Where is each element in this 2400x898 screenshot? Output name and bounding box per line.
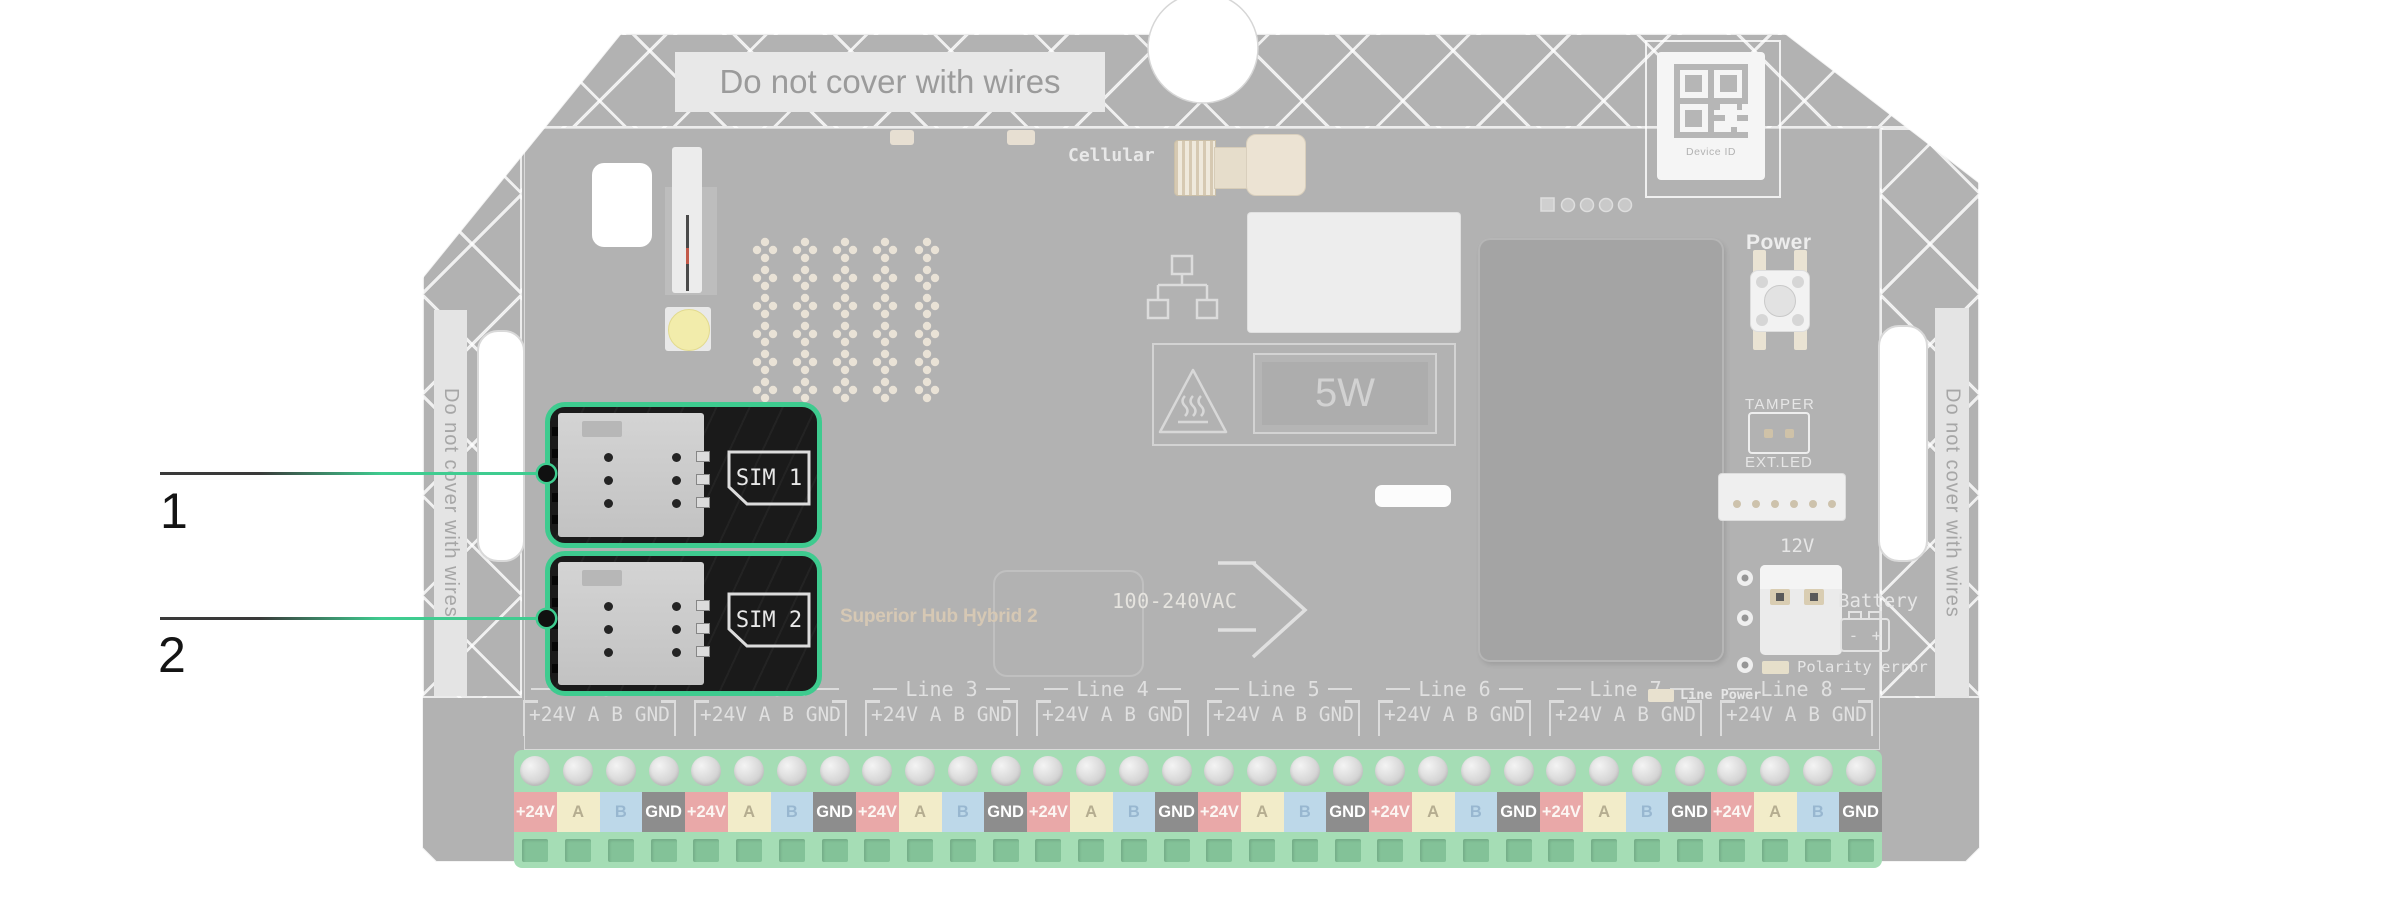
terminal-cell-label: A <box>1583 792 1626 832</box>
warning-banner-top: Do not cover with wires <box>675 52 1105 112</box>
terminal-cell-label: +24V <box>1711 792 1754 832</box>
power-button-plunger <box>1764 285 1796 317</box>
terminal-wire-hole <box>942 839 985 862</box>
sim1-socket <box>558 413 704 537</box>
terminal-bracket: +24V A B GND <box>1549 700 1702 736</box>
antenna-elbow <box>1246 134 1306 196</box>
terminal-screw <box>942 756 985 786</box>
terminal-wire-hole <box>984 839 1027 862</box>
terminal-screw <box>771 756 814 786</box>
terminal-screw <box>1284 756 1327 786</box>
socket-tooth <box>552 427 558 436</box>
terminal-screw <box>642 756 685 786</box>
terminal-screw <box>1326 756 1369 786</box>
terminal-cell-label: GND <box>1155 792 1198 832</box>
sim-pin <box>604 499 613 508</box>
sim-contact <box>696 474 710 485</box>
sim-pin <box>604 602 613 611</box>
terminal-cell-label: GND <box>642 792 685 832</box>
power-button-body <box>1750 270 1810 332</box>
terminal-screw <box>984 756 1027 786</box>
sim-pin <box>672 625 681 634</box>
terminal-wire-hole <box>813 839 856 862</box>
terminal-wire-hole <box>1198 839 1241 862</box>
terminal-wire-hole <box>1711 839 1754 862</box>
terminal-cell-label: +24V <box>1027 792 1070 832</box>
terminal-cell-label: B <box>1626 792 1669 832</box>
terminal-screw <box>557 756 600 786</box>
terminal-bracket: +24V A B GND <box>1036 700 1189 736</box>
terminal-screw <box>728 756 771 786</box>
ext-led-pin <box>1809 500 1817 508</box>
terminal-cell-label: B <box>600 792 643 832</box>
socket-tab <box>582 570 622 586</box>
ext-led-pin <box>1828 500 1836 508</box>
terminal-cell-label: B <box>942 792 985 832</box>
terminal-wire-hole <box>685 839 728 862</box>
line-group-label: Line 3 <box>905 677 977 701</box>
tamper-label: TAMPER <box>1745 396 1815 413</box>
mounting-slot-right <box>1878 325 1928 562</box>
device-id-caption: Device ID <box>1657 146 1765 158</box>
12v-label: 12V <box>1780 535 1814 557</box>
warning-banner-right-text: Do not cover with wires <box>1941 388 1964 618</box>
terminal-screw <box>1027 756 1070 786</box>
terminal-cell-label: +24V <box>856 792 899 832</box>
terminal-screw <box>813 756 856 786</box>
terminal-wire-hole <box>1155 839 1198 862</box>
button-corner <box>1756 276 1768 288</box>
callout-number-1: 1 <box>160 482 188 540</box>
callout-line-1 <box>160 472 542 475</box>
sim-contact <box>696 451 710 462</box>
terminal-wire-holes <box>514 832 1882 868</box>
terminal-cell-label: B <box>1113 792 1156 832</box>
terminal-screw-row <box>514 750 1882 792</box>
button-corner <box>1756 314 1768 326</box>
terminal-cell-label: A <box>1070 792 1113 832</box>
tamper-connector <box>1748 412 1810 454</box>
socket-tooth <box>552 515 558 524</box>
terminal-cell-label: +24V <box>1369 792 1412 832</box>
socket-tooth <box>552 493 558 502</box>
terminal-cell-label: B <box>1284 792 1327 832</box>
cellular-label-text: Cellular <box>1068 145 1155 166</box>
tamper-pin <box>1764 429 1773 438</box>
ext-led-pin <box>1733 500 1741 508</box>
sim2-socket <box>558 562 704 685</box>
battery-icon: - + <box>1840 618 1890 652</box>
sim-pin <box>604 476 613 485</box>
tamper-label-text: TAMPER <box>1745 396 1815 413</box>
socket-tab <box>582 421 622 437</box>
terminal-wire-hole <box>771 839 814 862</box>
terminal-wire-hole <box>856 839 899 862</box>
terminal-screw <box>685 756 728 786</box>
terminal-screw <box>856 756 899 786</box>
terminal-cell-label: B <box>1455 792 1498 832</box>
battery-connector <box>1760 565 1842 655</box>
terminal-wire-hole <box>1626 839 1669 862</box>
ext-led-pin <box>1752 500 1760 508</box>
connector-mark-red <box>686 248 689 264</box>
terminal-cell-label: B <box>771 792 814 832</box>
line-group-label: Line 5 <box>1247 677 1319 701</box>
terminal-cell-label: GND <box>1497 792 1540 832</box>
terminal-cell-label: GND <box>984 792 1027 832</box>
terminal-wire-hole <box>1369 839 1412 862</box>
terminal-wire-hole <box>1839 839 1882 862</box>
polarity-error-label: Polarity error <box>1797 658 1928 676</box>
power-rating-text: 5W <box>1315 371 1375 416</box>
sim-contact <box>696 646 710 657</box>
terminal-cell-label: +24V <box>1198 792 1241 832</box>
terminal-screw <box>1241 756 1284 786</box>
line-group-label: Line 4 <box>1076 677 1148 701</box>
terminal-cell-label: GND <box>1839 792 1882 832</box>
terminal-cell-label: A <box>1412 792 1455 832</box>
terminal-screw <box>1583 756 1626 786</box>
terminal-screw <box>1754 756 1797 786</box>
sim-pin <box>672 499 681 508</box>
terminal-cell-label: A <box>899 792 942 832</box>
terminal-wire-hole <box>1497 839 1540 862</box>
sim1-label: SIM 1 <box>727 466 811 491</box>
sim-contact <box>696 623 710 634</box>
power-rating-badge: 5W <box>1253 353 1437 434</box>
sim-pin <box>672 602 681 611</box>
antenna-connector-thread <box>1174 140 1216 196</box>
terminal-cell-label: A <box>1241 792 1284 832</box>
component-white-block <box>592 163 652 247</box>
callout-number-2: 2 <box>158 626 186 684</box>
socket-tooth <box>552 642 558 651</box>
terminal-screw <box>1711 756 1754 786</box>
terminal-screw <box>1497 756 1540 786</box>
line-group: Line 3+24V A B GND <box>856 678 1027 748</box>
terminal-wire-hole <box>1070 839 1113 862</box>
ext-led-pin <box>1771 500 1779 508</box>
sim1-highlight: SIM 1 <box>545 402 822 548</box>
terminal-screw <box>1070 756 1113 786</box>
terminal-cell-label: A <box>1754 792 1797 832</box>
terminal-bracket: +24V A B GND <box>523 700 676 736</box>
terminal-wire-hole <box>728 839 771 862</box>
terminal-screw <box>1412 756 1455 786</box>
battery-contact <box>1804 589 1824 605</box>
warning-banner-top-text: Do not cover with wires <box>719 63 1060 101</box>
terminal-wire-hole <box>1797 839 1840 862</box>
terminal-cell-label: GND <box>1326 792 1369 832</box>
terminal-cell-label: GND <box>1668 792 1711 832</box>
terminal-cell-label: A <box>728 792 771 832</box>
antenna-connector-collar <box>1214 147 1248 189</box>
terminal-wire-hole <box>557 839 600 862</box>
sim-contact <box>696 497 710 508</box>
qr-code <box>1674 64 1748 138</box>
terminal-screw <box>514 756 557 786</box>
terminal-screw <box>1198 756 1241 786</box>
socket-tooth <box>552 576 558 585</box>
mains-voltage-label: 100-240VAC <box>1112 589 1237 613</box>
callout-dot-1 <box>538 465 555 482</box>
line-group: Line 6+24V A B GND <box>1369 678 1540 748</box>
terminal-wire-hole <box>1668 839 1711 862</box>
battery-label: Battery <box>1838 590 1918 612</box>
warning-banner-left: Do not cover with wires <box>434 310 467 696</box>
terminal-wire-hole <box>600 839 643 862</box>
terminal-screw <box>1155 756 1198 786</box>
terminal-cell-label: +24V <box>1540 792 1583 832</box>
callout-dot-2 <box>538 610 555 627</box>
terminal-bracket: +24V A B GND <box>1378 700 1531 736</box>
terminal-screw <box>1369 756 1412 786</box>
terminal-wire-hole <box>1326 839 1369 862</box>
terminal-cell-label: B <box>1797 792 1840 832</box>
sim-pin <box>604 648 613 657</box>
battery-plus: + <box>1872 626 1882 645</box>
terminal-wire-hole <box>1241 839 1284 862</box>
button-corner <box>1792 276 1804 288</box>
model-name-text: Superior Hub Hybrid 2 <box>840 606 1037 627</box>
button-corner <box>1792 314 1804 326</box>
cellular-label: Cellular <box>1068 145 1155 166</box>
terminal-screw <box>899 756 942 786</box>
terminal-screw <box>1797 756 1840 786</box>
socket-tooth <box>552 598 558 607</box>
ext-led-connector <box>1718 473 1846 521</box>
terminal-wire-hole <box>1583 839 1626 862</box>
sim-contact <box>696 600 710 611</box>
polarity-error-led <box>1762 661 1789 674</box>
device-id-panel: Device ID <box>1657 52 1765 180</box>
line-power-label: Line Power <box>1648 687 1761 703</box>
terminal-screw <box>600 756 643 786</box>
sim-pin <box>604 625 613 634</box>
warning-banner-left-text: Do not cover with wires <box>439 388 462 618</box>
ext-led-pin <box>1790 500 1798 508</box>
terminal-screw <box>1626 756 1669 786</box>
callout-line-2 <box>160 617 542 620</box>
polarity-error-text: Polarity error <box>1797 658 1928 676</box>
line-group-label: Line 8 <box>1760 677 1832 701</box>
12v-label-text: 12V <box>1780 535 1814 557</box>
line-group: Line 5+24V A B GND <box>1198 678 1369 748</box>
sim2-highlight: SIM 2 <box>545 551 822 696</box>
terminal-bracket: +24V A B GND <box>1720 700 1873 736</box>
terminal-wire-hole <box>642 839 685 862</box>
ext-led-label: EXT.LED <box>1745 454 1813 471</box>
terminal-screw <box>1540 756 1583 786</box>
warning-banner-right: Do not cover with wires <box>1935 308 1969 698</box>
page: Do not cover with wires Do not cover wit… <box>0 0 2400 898</box>
line-group-label: Line 6 <box>1418 677 1490 701</box>
terminal-screw <box>1839 756 1882 786</box>
socket-tooth <box>552 449 558 458</box>
terminal-screw <box>1668 756 1711 786</box>
line-power-led <box>1648 689 1674 702</box>
speaker-module <box>1478 238 1724 662</box>
line-power-text: Line Power <box>1680 687 1761 703</box>
mains-voltage-text: 100-240VAC <box>1112 589 1237 613</box>
terminal-cell-label: +24V <box>514 792 557 832</box>
terminal-screw <box>1455 756 1498 786</box>
model-name: Superior Hub Hybrid 2 <box>840 606 1037 628</box>
sim-pin <box>672 648 681 657</box>
component-pill <box>1375 485 1451 507</box>
terminal-cell-label: A <box>557 792 600 832</box>
sim-pin <box>672 453 681 462</box>
sim2-label: SIM 2 <box>727 608 811 633</box>
battery-label-text: Battery <box>1838 590 1918 612</box>
ext-led-label-text: EXT.LED <box>1745 454 1813 471</box>
sim-pin <box>672 476 681 485</box>
power-button <box>1749 250 1811 350</box>
terminal-wire-hole <box>1113 839 1156 862</box>
terminal-wire-hole <box>1540 839 1583 862</box>
terminal-wire-hole <box>1412 839 1455 862</box>
terminal-bracket: +24V A B GND <box>694 700 847 736</box>
terminal-label-row: +24VABGND+24VABGND+24VABGND+24VABGND+24V… <box>514 792 1882 832</box>
terminal-cell-label: GND <box>813 792 856 832</box>
socket-tooth <box>552 664 558 673</box>
terminal-wire-hole <box>1754 839 1797 862</box>
status-led <box>668 309 710 351</box>
line-group: Line 4+24V A B GND <box>1027 678 1198 748</box>
terminal-screw <box>1113 756 1156 786</box>
terminal-wire-hole <box>514 839 557 862</box>
battery-minus: - <box>1849 626 1859 645</box>
terminal-wire-hole <box>1455 839 1498 862</box>
battery-contact <box>1770 589 1790 605</box>
sim-pin <box>604 453 613 462</box>
terminal-wire-hole <box>899 839 942 862</box>
terminal-wire-hole <box>1027 839 1070 862</box>
terminal-cell-label: +24V <box>685 792 728 832</box>
mounting-slot-left <box>477 330 525 562</box>
terminal-bracket: +24V A B GND <box>1207 700 1360 736</box>
terminal-wire-hole <box>1284 839 1327 862</box>
tamper-pin <box>1785 429 1794 438</box>
terminal-bracket: +24V A B GND <box>865 700 1018 736</box>
cellular-module <box>1248 213 1460 332</box>
